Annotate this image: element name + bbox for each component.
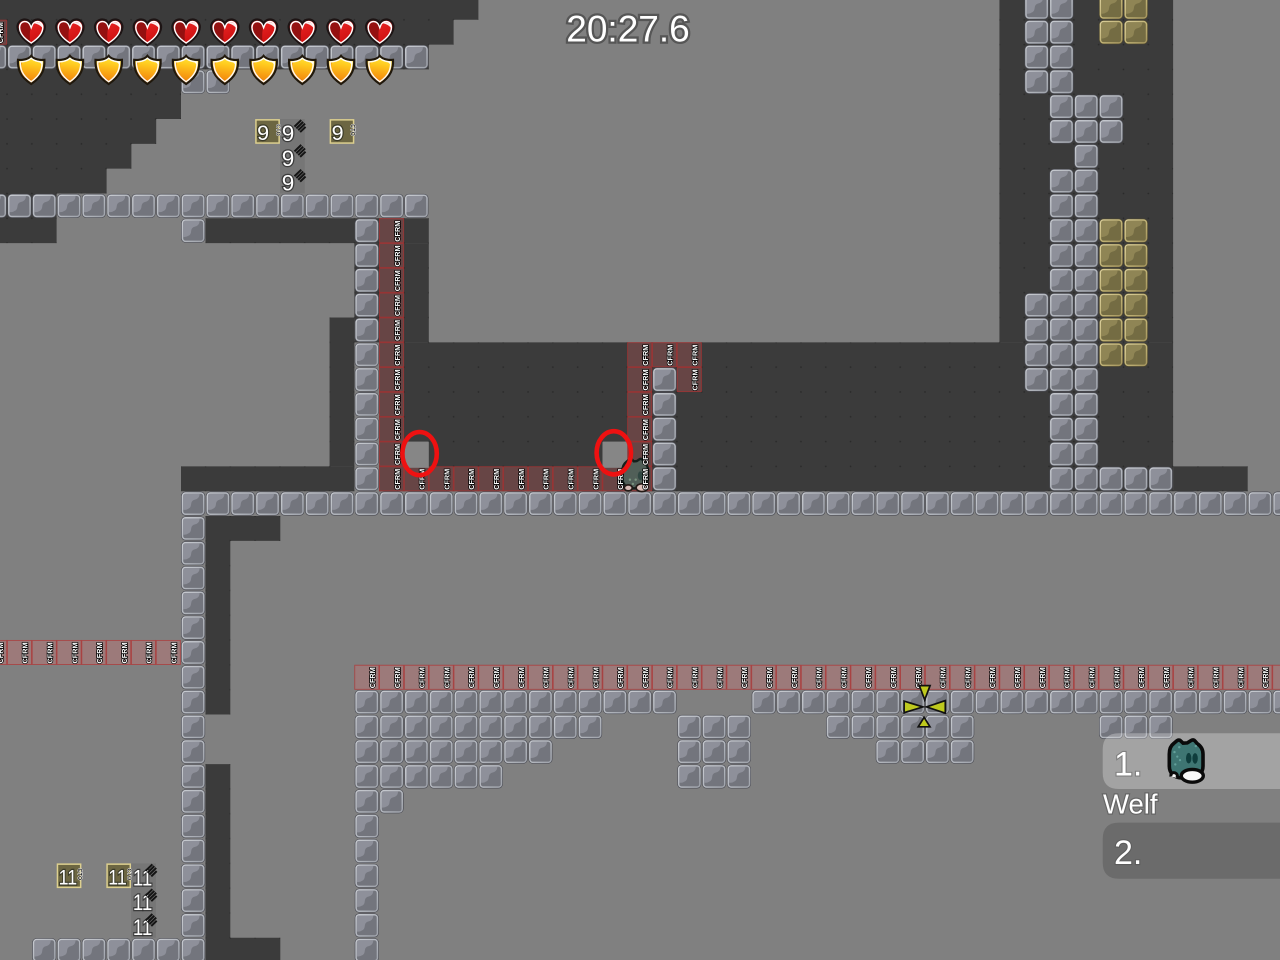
svg-text:CFRM: CFRM <box>393 270 402 291</box>
svg-text:CFRM: CFRM <box>542 469 551 490</box>
svg-text:CFRM: CFRM <box>70 643 79 664</box>
svg-text:CFRM: CFRM <box>145 643 154 664</box>
svg-text:CFRM: CFRM <box>963 667 972 688</box>
svg-text:9: 9 <box>282 171 295 196</box>
svg-text:CFRM: CFRM <box>691 345 700 366</box>
svg-text:CFRM: CFRM <box>368 667 377 688</box>
svg-text:CFRM: CFRM <box>641 345 650 366</box>
svg-text:CFRM: CFRM <box>393 246 402 267</box>
svg-text:CFRM: CFRM <box>567 469 576 490</box>
svg-text:CTO: CTO <box>76 869 82 881</box>
svg-text:CFRM: CFRM <box>616 667 625 688</box>
svg-text:CFRM: CFRM <box>1112 667 1121 688</box>
svg-text:CFRM: CFRM <box>591 469 600 490</box>
svg-text:CFRM: CFRM <box>889 667 898 688</box>
svg-text:11: 11 <box>108 865 127 889</box>
svg-text:CFRM: CFRM <box>641 444 650 465</box>
svg-text:CFRM: CFRM <box>393 667 402 688</box>
svg-text:11: 11 <box>133 915 153 940</box>
svg-text:CFRM: CFRM <box>939 667 948 688</box>
svg-text:CFRM: CFRM <box>1236 667 1245 688</box>
svg-text:CFRM: CFRM <box>170 643 179 664</box>
svg-text:CTO: CTO <box>275 124 281 136</box>
svg-text:CFRM: CFRM <box>988 667 997 688</box>
svg-text:CFRM: CFRM <box>1212 667 1221 688</box>
svg-text:CFRM: CFRM <box>393 295 402 316</box>
svg-text:CFRM: CFRM <box>666 345 675 366</box>
svg-text:CFRM: CFRM <box>815 667 824 688</box>
svg-text:9: 9 <box>282 121 295 146</box>
svg-text:CFRM: CFRM <box>517 469 526 490</box>
svg-text:CTO: CTO <box>126 869 132 881</box>
svg-text:CFRM: CFRM <box>790 667 799 688</box>
svg-text:CFRM: CFRM <box>641 469 650 490</box>
svg-text:CFRM: CFRM <box>393 394 402 415</box>
svg-text:CFRM: CFRM <box>1038 667 1047 688</box>
svg-text:11: 11 <box>59 865 78 889</box>
svg-text:CFRM: CFRM <box>542 667 551 688</box>
svg-text:Welf: Welf <box>1103 789 1158 820</box>
svg-text:9: 9 <box>282 146 295 171</box>
svg-text:CFRM: CFRM <box>715 667 724 688</box>
svg-text:CFRM: CFRM <box>691 667 700 688</box>
svg-text:CTO: CTO <box>349 124 355 136</box>
svg-text:CFRM: CFRM <box>517 667 526 688</box>
svg-text:11: 11 <box>133 890 153 915</box>
svg-text:2.: 2. <box>1114 834 1142 872</box>
svg-text:CFRM: CFRM <box>120 643 129 664</box>
svg-text:CFRM: CFRM <box>467 667 476 688</box>
svg-text:CFRM: CFRM <box>0 22 5 43</box>
svg-text:CFRM: CFRM <box>393 221 402 242</box>
svg-text:CFRM: CFRM <box>740 667 749 688</box>
svg-text:CFRM: CFRM <box>418 667 427 688</box>
svg-text:1.: 1. <box>1114 746 1142 784</box>
svg-text:CFRM: CFRM <box>1162 667 1171 688</box>
svg-text:CFRM: CFRM <box>492 469 501 490</box>
svg-text:9: 9 <box>257 121 269 145</box>
svg-text:CFRM: CFRM <box>95 643 104 664</box>
svg-text:CFRM: CFRM <box>666 667 675 688</box>
svg-text:CFRM: CFRM <box>46 643 55 664</box>
svg-text:CFRM: CFRM <box>393 320 402 341</box>
svg-text:CFRM: CFRM <box>1261 667 1270 688</box>
svg-text:CFRM: CFRM <box>1187 667 1196 688</box>
svg-text:CFRM: CFRM <box>641 667 650 688</box>
svg-text:CFRM: CFRM <box>393 370 402 391</box>
svg-text:CFRM: CFRM <box>641 394 650 415</box>
svg-text:CFRM: CFRM <box>765 667 774 688</box>
svg-text:CFRM: CFRM <box>0 643 5 664</box>
svg-text:CFRM: CFRM <box>1137 667 1146 688</box>
svg-text:CFRM: CFRM <box>591 667 600 688</box>
svg-text:CFRM: CFRM <box>567 667 576 688</box>
svg-text:CFRM: CFRM <box>691 370 700 391</box>
svg-text:CFRM: CFRM <box>1063 667 1072 688</box>
svg-text:CFRM: CFRM <box>641 419 650 440</box>
svg-text:CFRM: CFRM <box>641 370 650 391</box>
svg-text:CFRM: CFRM <box>393 419 402 440</box>
svg-text:CFRM: CFRM <box>492 667 501 688</box>
svg-text:CFRM: CFRM <box>393 345 402 366</box>
svg-text:CFRM: CFRM <box>864 667 873 688</box>
svg-text:11: 11 <box>133 865 153 890</box>
svg-text:CFRM: CFRM <box>1013 667 1022 688</box>
svg-text:CFRM: CFRM <box>442 469 451 490</box>
svg-text:CFRM: CFRM <box>393 469 402 490</box>
svg-text:CFRM: CFRM <box>442 667 451 688</box>
svg-text:CFRM: CFRM <box>839 667 848 688</box>
svg-text:9: 9 <box>332 121 344 145</box>
svg-text:CFRM: CFRM <box>21 643 30 664</box>
svg-text:CFRM: CFRM <box>467 469 476 490</box>
svg-text:20:27.6: 20:27.6 <box>566 9 689 50</box>
svg-text:CFRM: CFRM <box>1088 667 1097 688</box>
